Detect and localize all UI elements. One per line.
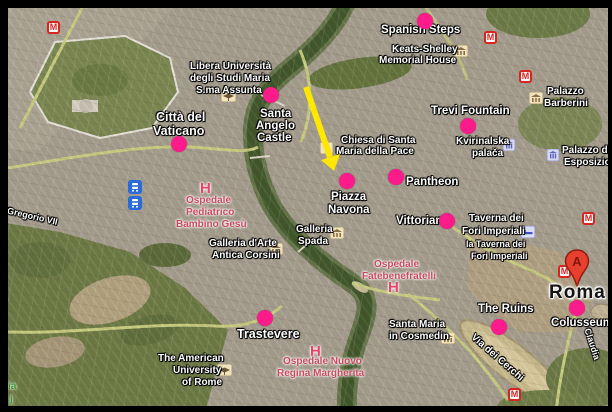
marker-trastevere[interactable] <box>257 310 273 326</box>
marker-santa-angelo-castle[interactable] <box>263 87 279 103</box>
marker-citta-del-vaticano[interactable] <box>171 136 187 152</box>
markers-layer <box>8 8 608 406</box>
marker-spanish-steps[interactable] <box>417 13 433 29</box>
map-world: MMMMMMA Spanish StepsKeats-ShelleyMemori… <box>8 8 608 406</box>
screenshot-frame: MMMMMMA Spanish StepsKeats-ShelleyMemori… <box>0 0 612 412</box>
marker-trevi-fountain[interactable] <box>460 118 476 134</box>
marker-the-ruins[interactable] <box>491 319 507 335</box>
marker-pantheon[interactable] <box>388 169 404 185</box>
marker-piazza-navona[interactable] <box>339 173 355 189</box>
marker-vittoriano[interactable] <box>439 213 455 229</box>
rome-satellite-map[interactable]: MMMMMMA Spanish StepsKeats-ShelleyMemori… <box>8 8 608 406</box>
marker-colosseum[interactable] <box>569 300 585 316</box>
